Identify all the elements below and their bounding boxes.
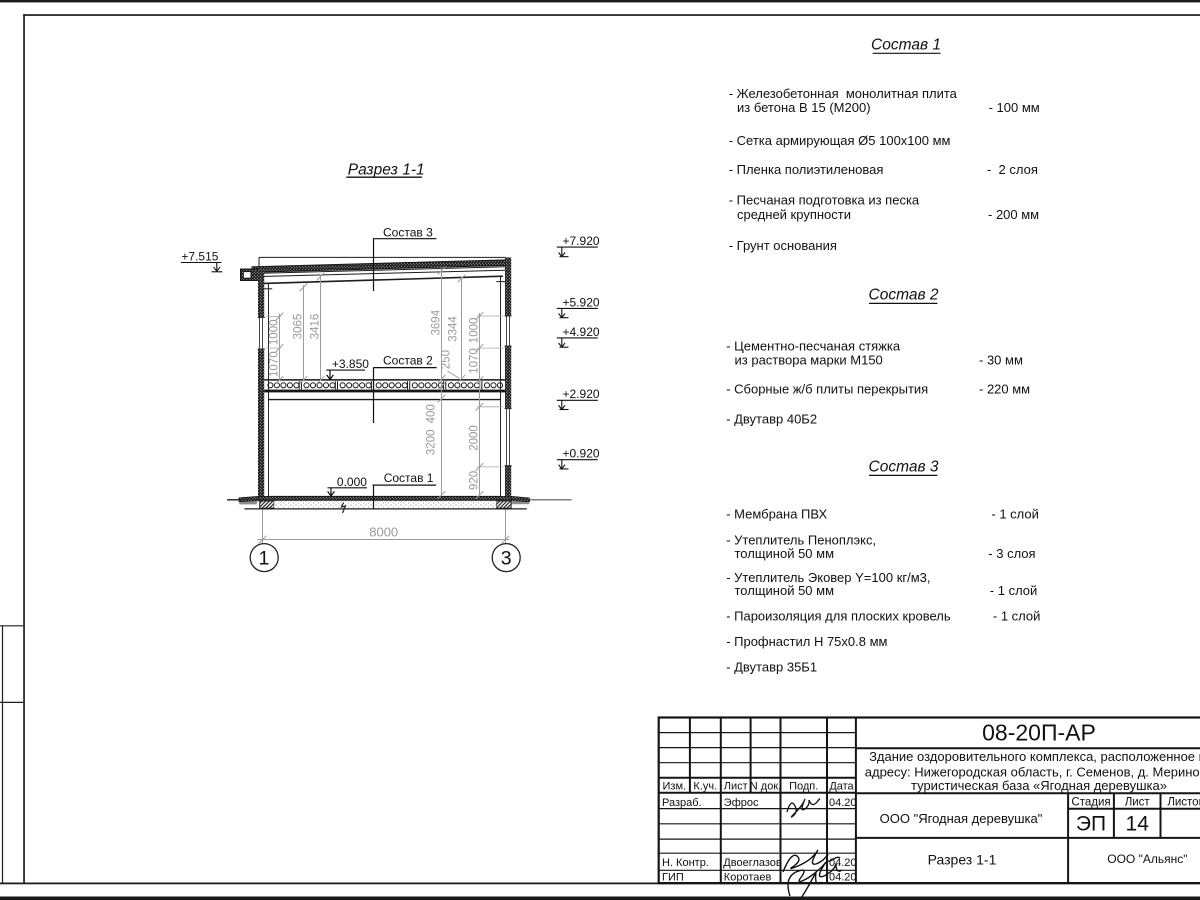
svg-text:3: 3 [501, 548, 512, 570]
svg-text:из бетона В 15 (М200): из бетона В 15 (М200) [737, 100, 871, 115]
svg-text:- Мембрана ПВХ: - Мембрана ПВХ [726, 507, 827, 522]
svg-text:Здание оздоровительного компле: Здание оздоровительного комплекса, распо… [869, 749, 1200, 764]
svg-text:- 30 мм: - 30 мм [979, 352, 1023, 367]
svg-text:Коротаев: Коротаев [724, 872, 772, 884]
svg-text:1070: 1070 [469, 348, 481, 374]
svg-text:3416: 3416 [310, 314, 322, 340]
svg-text:04.20: 04.20 [829, 797, 857, 809]
svg-text:- Сетка армирующая Ø5 100x100: - Сетка армирующая Ø5 100x100 мм [729, 133, 951, 148]
svg-text:04.20: 04.20 [829, 872, 857, 884]
svg-text:Состав 2: Состав 2 [383, 354, 433, 368]
svg-text:ООО "Ягодная деревушка": ООО "Ягодная деревушка" [880, 811, 1043, 826]
svg-text:Разрез 1-1: Разрез 1-1 [348, 161, 425, 178]
svg-text:Двоеглазов: Двоеглазов [723, 857, 782, 869]
svg-text:- 1 слой: - 1 слой [990, 583, 1038, 598]
svg-text:- 2 слоя: - 2 слоя [987, 162, 1038, 177]
svg-text:Дата: Дата [829, 781, 854, 793]
svg-text:- Грунт основания: - Грунт основания [729, 238, 837, 253]
svg-text:Изм.: Изм. [663, 781, 687, 793]
svg-text:8000: 8000 [369, 525, 398, 540]
svg-text:3344: 3344 [448, 316, 460, 342]
svg-text:средней крупности: средней крупности [737, 207, 851, 222]
svg-text:- Железобетонная монолитная п: - Железобетонная монолитная плита [729, 86, 958, 101]
svg-text:толщиной 50 мм: толщиной 50 мм [735, 546, 835, 561]
svg-text:Н. Контр.: Н. Контр. [662, 857, 709, 869]
svg-text:0.000: 0.000 [337, 475, 367, 489]
svg-text:- 3 слоя: - 3 слоя [988, 546, 1035, 561]
svg-text:1: 1 [258, 548, 269, 570]
svg-text:1070: 1070 [269, 351, 281, 377]
svg-text:- 220 мм: - 220 мм [979, 382, 1030, 397]
svg-text:Состав 1: Состав 1 [384, 471, 434, 485]
svg-text:К.уч.: К.уч. [693, 781, 717, 793]
svg-text:Разраб.: Разраб. [662, 797, 702, 809]
svg-text:- Профнастил Н 75х0.8 мм: - Профнастил Н 75х0.8 мм [726, 634, 887, 649]
svg-text:14: 14 [1126, 813, 1150, 836]
svg-text:Лист: Лист [724, 781, 748, 793]
svg-text:3065: 3065 [293, 314, 305, 340]
svg-text:+3.850: +3.850 [332, 357, 369, 371]
svg-text:- Песчаная подготовка из песка: - Песчаная подготовка из песка [729, 193, 920, 208]
svg-text:3694: 3694 [431, 309, 443, 335]
svg-text:из раствора марки М150: из раствора марки М150 [735, 352, 883, 367]
svg-text:+0.920: +0.920 [563, 446, 600, 460]
svg-text:- 1 слой: - 1 слой [991, 507, 1039, 522]
svg-text:Разрез 1-1: Разрез 1-1 [928, 852, 997, 868]
svg-text:- Двутавр 40Б2: - Двутавр 40Б2 [726, 412, 817, 427]
svg-text:- 100 мм: - 100 мм [989, 100, 1040, 115]
svg-text:- Пароизоляция для плоских кро: - Пароизоляция для плоских кровель [726, 609, 951, 624]
svg-text:08-20П-АР: 08-20П-АР [982, 720, 1096, 746]
svg-text:1000: 1000 [269, 320, 281, 346]
svg-text:N док.: N док. [750, 781, 781, 793]
svg-text:- Сборные ж/б плиты перекрытия: - Сборные ж/б плиты перекрытия [726, 382, 928, 397]
svg-text:ООО "Альянс": ООО "Альянс" [1107, 852, 1187, 866]
svg-text:Эфрос: Эфрос [724, 797, 759, 809]
svg-text:толщиной 50 мм: толщиной 50 мм [735, 583, 835, 598]
svg-text:- Цементно-песчаная стяжка: - Цементно-песчаная стяжка [726, 338, 901, 353]
svg-text:- 1 слой: - 1 слой [993, 609, 1041, 624]
svg-text:+4.920: +4.920 [563, 325, 600, 339]
svg-text:Состав 2: Состав 2 [869, 287, 939, 304]
svg-text:- Утеплитель Пеноплэкс,: - Утеплитель Пеноплэкс, [726, 532, 876, 547]
svg-text:- Двутавр 35Б1: - Двутавр 35Б1 [726, 659, 817, 674]
svg-text:туристическая база «Ягодная де: туристическая база «Ягодная деревушка» [911, 778, 1167, 793]
svg-text:Состав 3: Состав 3 [869, 458, 939, 475]
svg-text:250: 250 [440, 350, 452, 369]
svg-text:Состав 3: Состав 3 [383, 225, 433, 239]
svg-text:ГИП: ГИП [662, 872, 684, 884]
svg-text:920: 920 [469, 471, 481, 490]
svg-text:ЭП: ЭП [1076, 813, 1106, 836]
svg-text:Стадия: Стадия [1071, 796, 1110, 808]
svg-text:- 200 мм: - 200 мм [988, 207, 1039, 222]
svg-text:400: 400 [426, 404, 438, 423]
svg-text:+5.920: +5.920 [563, 295, 600, 309]
svg-text:Листов: Листов [1167, 796, 1200, 808]
svg-text:2000: 2000 [469, 425, 481, 451]
svg-text:+7.515: +7.515 [181, 249, 218, 263]
svg-text:+2.920: +2.920 [563, 387, 600, 401]
svg-text:Лист: Лист [1125, 796, 1151, 808]
svg-text:Состав 1: Состав 1 [871, 37, 941, 54]
svg-text:1000: 1000 [469, 318, 481, 344]
svg-text:- Пленка полиэтиленовая: - Пленка полиэтиленовая [729, 162, 884, 177]
svg-text:3200: 3200 [426, 430, 438, 456]
svg-text:Подп.: Подп. [789, 781, 818, 793]
svg-text:+7.920: +7.920 [563, 234, 600, 248]
